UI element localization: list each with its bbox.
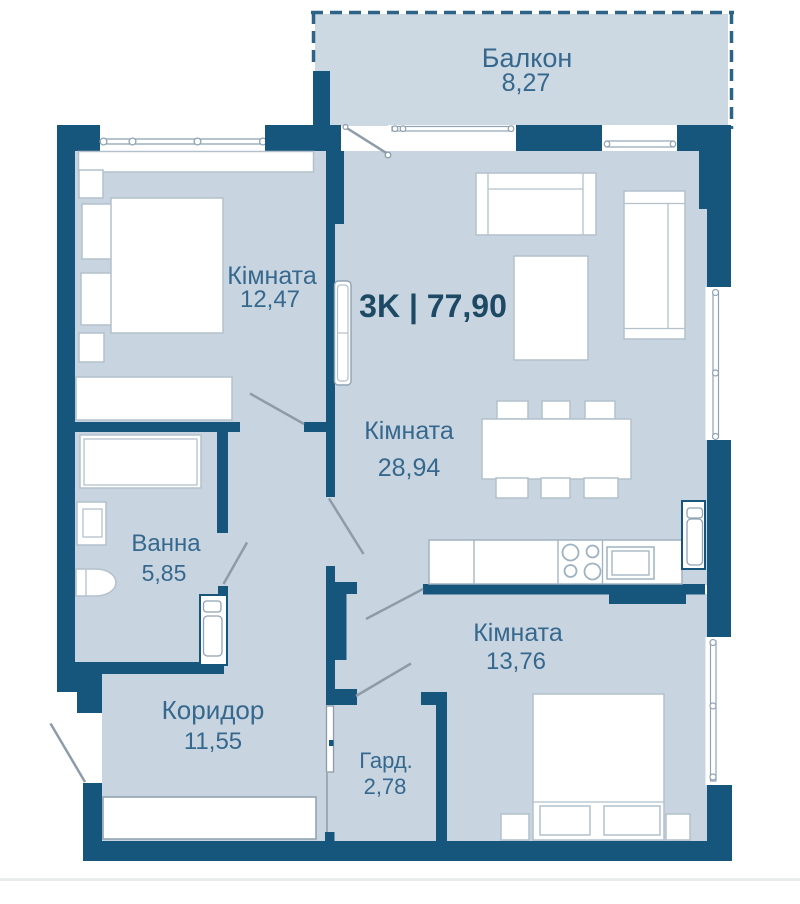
svg-text:Ванна: Ванна	[131, 530, 201, 557]
svg-text:13,76: 13,76	[486, 648, 546, 675]
svg-text:Коридор: Коридор	[162, 695, 265, 725]
svg-text:11,55: 11,55	[184, 728, 242, 755]
svg-text:Гард.: Гард.	[359, 748, 413, 773]
svg-text:8,27: 8,27	[502, 69, 551, 97]
svg-text:Кімната: Кімната	[473, 619, 563, 647]
svg-text:3K | 77,90: 3K | 77,90	[359, 288, 507, 324]
svg-text:Кімната: Кімната	[364, 417, 454, 445]
svg-text:2,78: 2,78	[364, 774, 407, 799]
svg-text:28,94: 28,94	[378, 454, 441, 482]
svg-text:12,47: 12,47	[240, 286, 300, 313]
svg-text:5,85: 5,85	[142, 560, 187, 586]
